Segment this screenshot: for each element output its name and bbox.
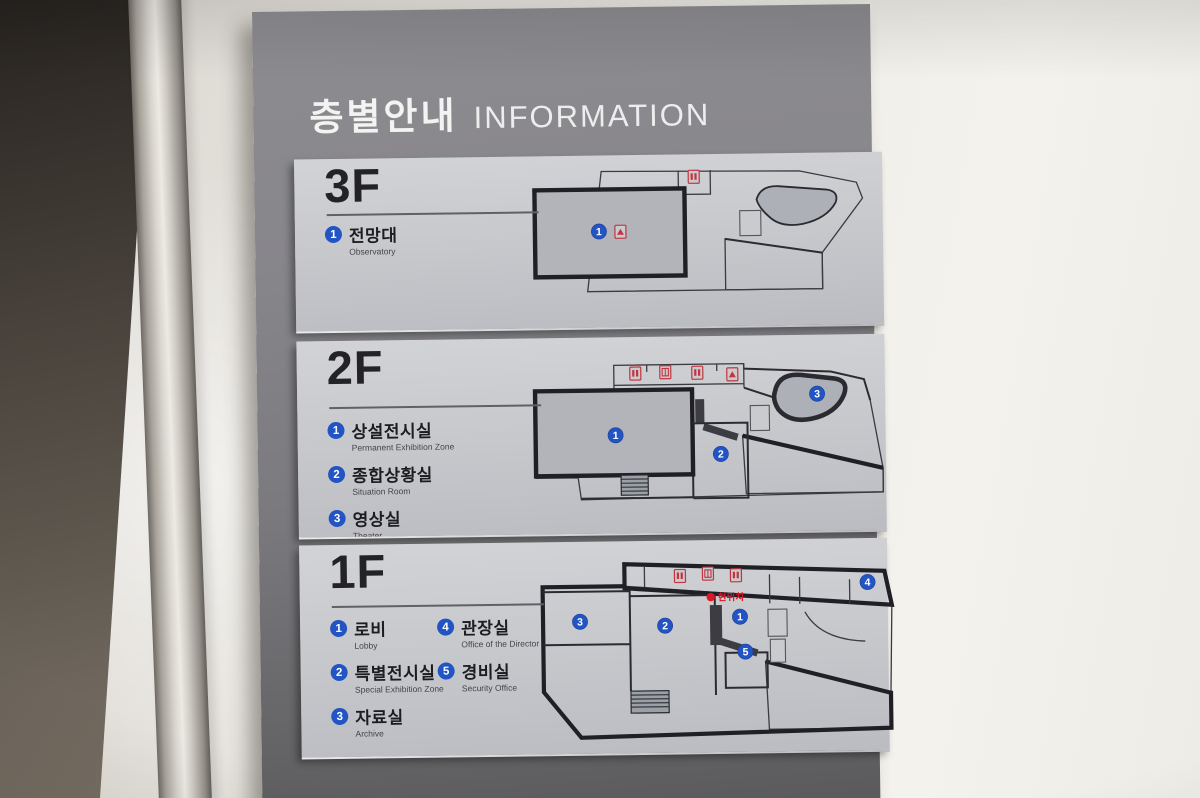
legend-item: 5경비실Security Office	[438, 657, 540, 693]
sign-title-english: INFORMATION	[473, 97, 710, 135]
svg-text:1: 1	[737, 611, 743, 623]
legend-item: 2종합상황실Situation Room	[328, 460, 455, 497]
corridor-band	[624, 561, 892, 608]
legend-1f: 1로비Lobby2특별전시실Special Exhibition Zone3자료…	[330, 613, 541, 748]
room-name-korean: 자료실	[355, 703, 404, 729]
svg-text:1: 1	[613, 430, 619, 442]
stairs-block	[631, 691, 669, 713]
room-name-english: Special Exhibition Zone	[355, 684, 434, 695]
accessible-restroom-icon	[630, 367, 641, 380]
room-name-korean: 영상실	[352, 505, 401, 531]
floor-panel-3f: 1 3F 1전망대Observatory	[294, 152, 884, 332]
accessible-restroom-icon	[674, 569, 685, 582]
room-name-english: Permanent Exhibition Zone	[352, 441, 455, 452]
room-name-english: Observatory	[349, 246, 398, 257]
legend-item: 1로비Lobby	[330, 615, 433, 651]
floor-label-2f: 2F	[326, 342, 384, 392]
room-name-korean: 로비	[354, 615, 387, 640]
plan-marker-3: 3	[809, 386, 824, 401]
elevator-icon	[702, 567, 713, 580]
legend-item: 3자료실Archive	[331, 703, 434, 739]
room-name-english: Situation Room	[352, 485, 455, 496]
restroom-icon	[688, 170, 699, 183]
room-name-korean: 관장실	[461, 614, 510, 640]
restroom-icon	[692, 366, 703, 379]
svg-text:3: 3	[814, 388, 820, 400]
legend-item: 1상설전시실Permanent Exhibition Zone	[327, 416, 454, 453]
legend-number-badge: 1	[325, 226, 342, 243]
plan-marker-1: 1	[591, 224, 606, 239]
svg-text:2: 2	[662, 620, 668, 632]
svg-text:4: 4	[865, 577, 871, 589]
room-name-korean: 전망대	[349, 221, 398, 247]
legend-number-badge: 2	[331, 664, 348, 681]
legend-item: 1전망대Observatory	[325, 221, 398, 257]
plan-marker-1: 1	[732, 609, 747, 624]
legend-number-badge: 2	[328, 466, 345, 483]
plan-marker-4: 4	[860, 574, 875, 589]
room-name-english: Security Office	[462, 682, 540, 693]
theater-room	[774, 374, 846, 420]
plan-marker-2: 2	[713, 446, 728, 461]
room-name-korean: 종합상황실	[352, 461, 433, 487]
photo-scene: 층별안내INFORMATION 1 3F	[0, 0, 1200, 798]
legend-number-badge: 1	[327, 422, 344, 439]
svg-text:1: 1	[596, 226, 602, 238]
floor-panel-2f: 123 2F 1상설전시실Permanent Exhibition Zone2종…	[296, 334, 887, 538]
legend-item: 2특별전시실Special Exhibition Zone	[331, 659, 434, 695]
room-name-korean: 상설전시실	[351, 417, 432, 443]
plan-marker-3: 3	[572, 614, 587, 629]
svg-text:5: 5	[742, 646, 748, 658]
stairs-block	[621, 475, 648, 495]
restroom-icon	[730, 569, 741, 582]
elevator-icon	[660, 366, 671, 379]
plan-marker-1: 1	[608, 428, 623, 443]
photo-spot-icon	[727, 368, 738, 381]
plan-marker-5: 5	[738, 644, 753, 659]
room-name-english: Theater	[353, 529, 456, 540]
floor-label-1f: 1F	[329, 546, 387, 596]
floor-panel-1f: 현위치 12345 1F 1로비Lobby2특별전시실Special Exhib…	[299, 538, 890, 758]
floor-label-3f: 3F	[324, 160, 382, 210]
legend-2f: 1상설전시실Permanent Exhibition Zone2종합상황실Sit…	[327, 416, 455, 550]
legend-number-badge: 3	[329, 510, 346, 527]
legend-number-badge: 4	[437, 618, 454, 635]
legend-3f: 1전망대Observatory	[325, 221, 398, 266]
room-name-korean: 경비실	[462, 658, 511, 684]
photo-spot-icon	[615, 225, 626, 238]
legend-item: 3영상실Theater	[328, 504, 455, 541]
plan-marker-2: 2	[657, 618, 672, 633]
legend-number-badge: 5	[438, 662, 455, 679]
legend-number-badge: 3	[331, 708, 348, 725]
legend-item: 4관장실Office of the Director	[437, 613, 539, 649]
sign-title-korean: 층별안내	[309, 95, 458, 138]
svg-text:현위치: 현위치	[718, 591, 744, 603]
sign-header: 층별안내INFORMATION	[309, 82, 711, 141]
svg-text:2: 2	[718, 449, 724, 461]
room-name-english: Lobby	[354, 640, 433, 651]
room-name-english: Office of the Director	[461, 638, 539, 649]
svg-text:3: 3	[577, 616, 583, 628]
room-name-english: Archive	[355, 728, 434, 739]
observatory-room	[534, 188, 685, 277]
information-signboard: 층별안내INFORMATION 1 3F	[252, 4, 881, 798]
room-name-korean: 특별전시실	[355, 659, 436, 685]
legend-number-badge: 1	[330, 620, 347, 637]
